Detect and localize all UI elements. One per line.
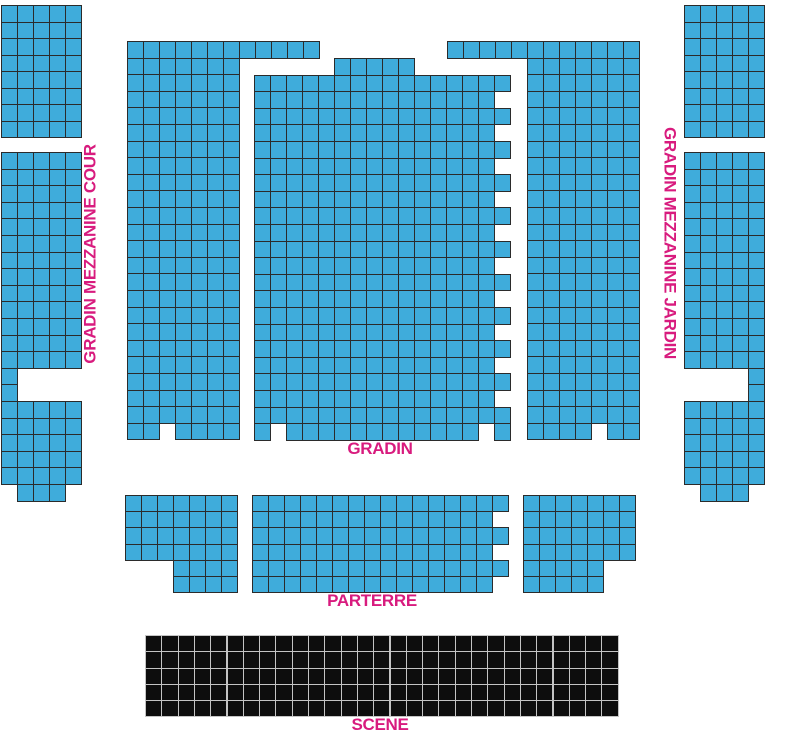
seat[interactable] <box>334 75 351 93</box>
seat[interactable] <box>380 495 397 512</box>
seat[interactable] <box>748 268 765 286</box>
seat[interactable] <box>398 373 415 391</box>
seat[interactable] <box>175 174 192 192</box>
seat[interactable] <box>587 495 604 512</box>
seat[interactable] <box>334 207 351 225</box>
seat[interactable] <box>33 318 50 336</box>
seat[interactable] <box>523 576 540 593</box>
seat[interactable] <box>125 495 142 512</box>
seat[interactable] <box>587 544 604 561</box>
seat[interactable] <box>127 157 144 175</box>
seat[interactable] <box>527 224 544 242</box>
seat[interactable] <box>286 108 303 126</box>
seat[interactable] <box>543 273 560 291</box>
seat[interactable] <box>495 41 512 59</box>
seat[interactable] <box>318 241 335 259</box>
seat[interactable] <box>575 74 592 92</box>
seat[interactable] <box>716 22 733 40</box>
seat[interactable] <box>559 141 576 159</box>
seat[interactable] <box>523 495 540 512</box>
seat[interactable] <box>49 185 66 203</box>
seat[interactable] <box>364 560 381 577</box>
seat[interactable] <box>591 290 608 308</box>
seat[interactable] <box>398 357 415 375</box>
seat[interactable] <box>732 38 749 56</box>
seat[interactable] <box>207 373 224 391</box>
seat[interactable] <box>286 407 303 425</box>
seat[interactable] <box>127 58 144 76</box>
seat[interactable] <box>205 495 222 512</box>
seat[interactable] <box>17 351 34 369</box>
seat[interactable] <box>286 241 303 259</box>
seat[interactable] <box>223 141 240 159</box>
seat[interactable] <box>125 511 142 528</box>
seat[interactable] <box>207 340 224 358</box>
seat[interactable] <box>412 495 429 512</box>
seat[interactable] <box>748 202 765 220</box>
seat[interactable] <box>191 323 208 341</box>
seat[interactable] <box>350 207 367 225</box>
seat[interactable] <box>302 141 319 159</box>
seat[interactable] <box>398 58 415 76</box>
seat[interactable] <box>270 307 287 325</box>
seat[interactable] <box>575 58 592 76</box>
seat[interactable] <box>716 268 733 286</box>
seat[interactable] <box>460 576 477 593</box>
seat[interactable] <box>539 495 556 512</box>
seat[interactable] <box>348 544 365 561</box>
seat[interactable] <box>382 108 399 126</box>
seat[interactable] <box>286 423 303 441</box>
seat[interactable] <box>607 356 624 374</box>
seat[interactable] <box>173 544 190 561</box>
seat[interactable] <box>268 560 285 577</box>
seat[interactable] <box>191 124 208 142</box>
seat[interactable] <box>523 511 540 528</box>
seat[interactable] <box>302 75 319 93</box>
seat[interactable] <box>191 91 208 109</box>
seat[interactable] <box>302 407 319 425</box>
seat[interactable] <box>700 71 717 89</box>
seat[interactable] <box>207 423 224 441</box>
seat[interactable] <box>350 241 367 259</box>
seat[interactable] <box>446 241 463 259</box>
seat[interactable] <box>591 373 608 391</box>
seat[interactable] <box>366 91 383 109</box>
seat[interactable] <box>494 340 511 358</box>
seat[interactable] <box>1 88 18 106</box>
seat[interactable] <box>157 544 174 561</box>
seat[interactable] <box>270 191 287 209</box>
seat[interactable] <box>414 373 431 391</box>
seat[interactable] <box>700 285 717 303</box>
seat[interactable] <box>254 423 271 441</box>
seat[interactable] <box>462 340 479 358</box>
seat[interactable] <box>191 174 208 192</box>
seat[interactable] <box>539 527 556 544</box>
seat[interactable] <box>65 235 82 253</box>
seat[interactable] <box>252 511 269 528</box>
seat[interactable] <box>543 124 560 142</box>
seat[interactable] <box>716 451 733 469</box>
seat[interactable] <box>623 323 640 341</box>
seat[interactable] <box>494 141 511 159</box>
seat[interactable] <box>382 124 399 142</box>
seat[interactable] <box>65 55 82 73</box>
seat[interactable] <box>1 202 18 220</box>
seat[interactable] <box>623 390 640 408</box>
seat[interactable] <box>494 307 511 325</box>
seat[interactable] <box>302 108 319 126</box>
seat[interactable] <box>143 74 160 92</box>
seat[interactable] <box>223 74 240 92</box>
seat[interactable] <box>49 351 66 369</box>
seat[interactable] <box>575 41 592 59</box>
seat[interactable] <box>159 240 176 258</box>
seat[interactable] <box>127 240 144 258</box>
seat[interactable] <box>350 124 367 142</box>
seat[interactable] <box>318 307 335 325</box>
seat[interactable] <box>623 290 640 308</box>
seat[interactable] <box>398 340 415 358</box>
seat[interactable] <box>587 511 604 528</box>
seat[interactable] <box>221 544 238 561</box>
seat[interactable] <box>127 307 144 325</box>
seat[interactable] <box>65 285 82 303</box>
seat[interactable] <box>559 207 576 225</box>
seat[interactable] <box>270 274 287 292</box>
seat[interactable] <box>254 324 271 342</box>
seat[interactable] <box>462 108 479 126</box>
seat[interactable] <box>159 390 176 408</box>
seat[interactable] <box>1 252 18 270</box>
seat[interactable] <box>49 104 66 122</box>
seat[interactable] <box>527 307 544 325</box>
seat[interactable] <box>189 576 206 593</box>
seat[interactable] <box>17 467 34 485</box>
seat[interactable] <box>623 356 640 374</box>
seat[interactable] <box>444 576 461 593</box>
seat[interactable] <box>430 340 447 358</box>
seat[interactable] <box>191 224 208 242</box>
seat[interactable] <box>412 511 429 528</box>
seat[interactable] <box>302 224 319 242</box>
seat[interactable] <box>143 323 160 341</box>
seat[interactable] <box>1 335 18 353</box>
seat[interactable] <box>143 356 160 374</box>
seat[interactable] <box>555 560 572 577</box>
seat[interactable] <box>607 174 624 192</box>
seat[interactable] <box>700 218 717 236</box>
seat[interactable] <box>141 544 158 561</box>
seat[interactable] <box>494 174 511 192</box>
seat[interactable] <box>366 141 383 159</box>
seat[interactable] <box>318 141 335 159</box>
seat[interactable] <box>334 191 351 209</box>
seat[interactable] <box>141 511 158 528</box>
seat[interactable] <box>684 467 701 485</box>
seat[interactable] <box>173 511 190 528</box>
seat[interactable] <box>382 307 399 325</box>
seat[interactable] <box>732 169 749 187</box>
seat[interactable] <box>623 74 640 92</box>
seat[interactable] <box>607 124 624 142</box>
seat[interactable] <box>460 544 477 561</box>
seat[interactable] <box>559 107 576 125</box>
seat[interactable] <box>543 207 560 225</box>
seat[interactable] <box>318 224 335 242</box>
seat[interactable] <box>559 74 576 92</box>
seat[interactable] <box>603 544 620 561</box>
seat[interactable] <box>478 307 495 325</box>
seat[interactable] <box>748 318 765 336</box>
seat[interactable] <box>462 357 479 375</box>
seat[interactable] <box>302 390 319 408</box>
seat[interactable] <box>700 434 717 452</box>
seat[interactable] <box>607 157 624 175</box>
seat[interactable] <box>17 5 34 23</box>
seat[interactable] <box>49 121 66 139</box>
seat[interactable] <box>591 41 608 59</box>
seat[interactable] <box>223 273 240 291</box>
seat[interactable] <box>684 121 701 139</box>
seat[interactable] <box>173 560 190 577</box>
seat[interactable] <box>159 207 176 225</box>
seat[interactable] <box>159 356 176 374</box>
seat[interactable] <box>33 484 50 502</box>
seat[interactable] <box>49 22 66 40</box>
seat[interactable] <box>732 335 749 353</box>
seat[interactable] <box>462 158 479 176</box>
seat[interactable] <box>143 58 160 76</box>
seat[interactable] <box>478 257 495 275</box>
seat[interactable] <box>700 121 717 139</box>
seat[interactable] <box>543 323 560 341</box>
seat[interactable] <box>684 71 701 89</box>
seat[interactable] <box>252 560 269 577</box>
seat[interactable] <box>159 340 176 358</box>
seat[interactable] <box>716 235 733 253</box>
seat[interactable] <box>65 335 82 353</box>
seat[interactable] <box>700 5 717 23</box>
seat[interactable] <box>716 418 733 436</box>
seat[interactable] <box>684 38 701 56</box>
seat[interactable] <box>748 152 765 170</box>
seat[interactable] <box>348 560 365 577</box>
seat[interactable] <box>1 218 18 236</box>
seat[interactable] <box>1 268 18 286</box>
seat[interactable] <box>444 527 461 544</box>
seat[interactable] <box>716 401 733 419</box>
seat[interactable] <box>430 191 447 209</box>
seat[interactable] <box>527 406 544 424</box>
seat[interactable] <box>446 407 463 425</box>
seat[interactable] <box>444 560 461 577</box>
seat[interactable] <box>284 527 301 544</box>
seat[interactable] <box>559 406 576 424</box>
seat[interactable] <box>527 423 544 441</box>
seat[interactable] <box>523 544 540 561</box>
seat[interactable] <box>607 423 624 441</box>
seat[interactable] <box>446 174 463 192</box>
seat[interactable] <box>252 495 269 512</box>
seat[interactable] <box>575 124 592 142</box>
seat[interactable] <box>463 41 480 59</box>
seat[interactable] <box>207 174 224 192</box>
seat[interactable] <box>17 38 34 56</box>
seat[interactable] <box>127 290 144 308</box>
seat[interactable] <box>700 318 717 336</box>
seat[interactable] <box>127 406 144 424</box>
seat[interactable] <box>49 268 66 286</box>
seat[interactable] <box>1 121 18 139</box>
seat[interactable] <box>539 576 556 593</box>
seat[interactable] <box>366 191 383 209</box>
seat[interactable] <box>270 91 287 109</box>
seat[interactable] <box>414 224 431 242</box>
seat[interactable] <box>318 124 335 142</box>
seat[interactable] <box>350 141 367 159</box>
seat[interactable] <box>414 158 431 176</box>
seat[interactable] <box>571 495 588 512</box>
seat[interactable] <box>555 527 572 544</box>
seat[interactable] <box>396 511 413 528</box>
seat[interactable] <box>221 576 238 593</box>
seat[interactable] <box>366 307 383 325</box>
seat[interactable] <box>607 307 624 325</box>
seat[interactable] <box>382 191 399 209</box>
seat[interactable] <box>268 544 285 561</box>
seat[interactable] <box>732 55 749 73</box>
seat[interactable] <box>49 285 66 303</box>
seat[interactable] <box>175 157 192 175</box>
seat[interactable] <box>587 527 604 544</box>
seat[interactable] <box>334 241 351 259</box>
seat[interactable] <box>684 301 701 319</box>
seat[interactable] <box>207 406 224 424</box>
seat[interactable] <box>494 108 511 126</box>
seat[interactable] <box>591 124 608 142</box>
seat[interactable] <box>748 368 765 386</box>
seat[interactable] <box>127 107 144 125</box>
seat[interactable] <box>684 418 701 436</box>
seat[interactable] <box>446 340 463 358</box>
seat[interactable] <box>207 91 224 109</box>
seat[interactable] <box>49 152 66 170</box>
seat[interactable] <box>302 307 319 325</box>
seat[interactable] <box>65 451 82 469</box>
seat[interactable] <box>607 58 624 76</box>
seat[interactable] <box>591 141 608 159</box>
seat[interactable] <box>559 423 576 441</box>
seat[interactable] <box>494 241 511 259</box>
seat[interactable] <box>398 224 415 242</box>
seat[interactable] <box>732 318 749 336</box>
seat[interactable] <box>476 560 493 577</box>
seat[interactable] <box>700 88 717 106</box>
seat[interactable] <box>430 174 447 192</box>
seat[interactable] <box>175 423 192 441</box>
seat[interactable] <box>191 390 208 408</box>
seat[interactable] <box>175 207 192 225</box>
seat[interactable] <box>527 174 544 192</box>
seat[interactable] <box>494 373 511 391</box>
seat[interactable] <box>430 357 447 375</box>
seat[interactable] <box>559 174 576 192</box>
seat[interactable] <box>543 157 560 175</box>
seat[interactable] <box>223 356 240 374</box>
seat[interactable] <box>398 75 415 93</box>
seat[interactable] <box>49 418 66 436</box>
seat[interactable] <box>684 104 701 122</box>
seat[interactable] <box>159 41 176 59</box>
seat[interactable] <box>716 71 733 89</box>
seat[interactable] <box>33 434 50 452</box>
seat[interactable] <box>300 527 317 544</box>
seat[interactable] <box>284 495 301 512</box>
seat[interactable] <box>428 511 445 528</box>
seat[interactable] <box>492 560 509 577</box>
seat[interactable] <box>430 307 447 325</box>
seat[interactable] <box>700 202 717 220</box>
seat[interactable] <box>543 340 560 358</box>
seat[interactable] <box>398 108 415 126</box>
seat[interactable] <box>462 124 479 142</box>
seat[interactable] <box>49 434 66 452</box>
seat[interactable] <box>700 55 717 73</box>
seat[interactable] <box>398 141 415 159</box>
seat[interactable] <box>398 91 415 109</box>
seat[interactable] <box>17 202 34 220</box>
seat[interactable] <box>17 88 34 106</box>
seat[interactable] <box>414 274 431 292</box>
seat[interactable] <box>527 157 544 175</box>
seat[interactable] <box>571 527 588 544</box>
seat[interactable] <box>748 185 765 203</box>
seat[interactable] <box>207 207 224 225</box>
seat[interactable] <box>444 495 461 512</box>
seat[interactable] <box>382 357 399 375</box>
seat[interactable] <box>191 406 208 424</box>
seat[interactable] <box>1 152 18 170</box>
seat[interactable] <box>318 174 335 192</box>
seat[interactable] <box>350 340 367 358</box>
seat[interactable] <box>302 191 319 209</box>
seat[interactable] <box>446 75 463 93</box>
seat[interactable] <box>700 268 717 286</box>
seat[interactable] <box>732 71 749 89</box>
seat[interactable] <box>748 121 765 139</box>
seat[interactable] <box>559 91 576 109</box>
seat[interactable] <box>318 357 335 375</box>
seat[interactable] <box>175 290 192 308</box>
seat[interactable] <box>175 41 192 59</box>
seat[interactable] <box>380 511 397 528</box>
seat[interactable] <box>223 323 240 341</box>
seat[interactable] <box>207 224 224 242</box>
seat[interactable] <box>366 357 383 375</box>
seat[interactable] <box>254 340 271 358</box>
seat[interactable] <box>684 55 701 73</box>
seat[interactable] <box>1 368 18 386</box>
seat[interactable] <box>318 407 335 425</box>
seat[interactable] <box>157 511 174 528</box>
seat[interactable] <box>716 252 733 270</box>
seat[interactable] <box>511 41 528 59</box>
seat[interactable] <box>748 252 765 270</box>
seat[interactable] <box>591 273 608 291</box>
seat[interactable] <box>143 41 160 59</box>
